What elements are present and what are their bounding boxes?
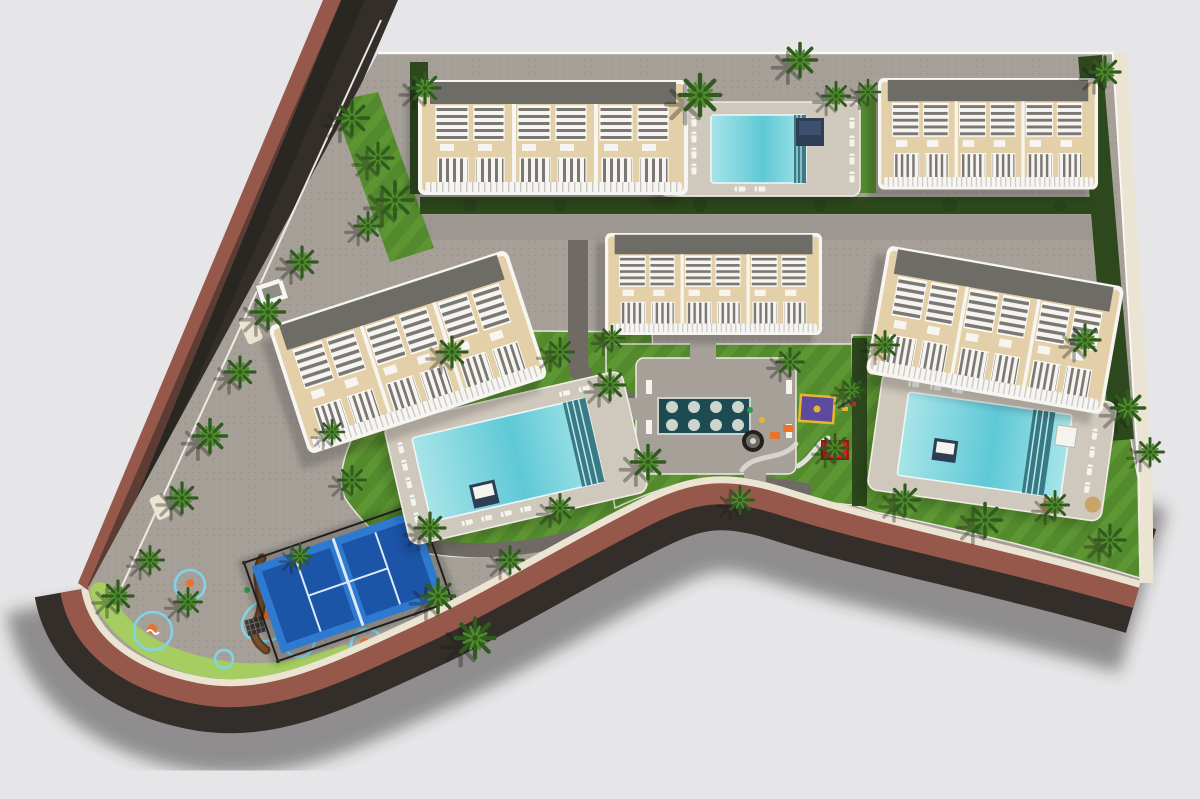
play-seat: [783, 425, 793, 432]
north-pool: [711, 115, 806, 183]
apartment-block-d: [595, 233, 822, 344]
apartment-block-a: [406, 80, 688, 205]
bench: [646, 420, 652, 434]
reflecting-pond: [658, 398, 750, 434]
daybed: [932, 438, 959, 463]
site-plan-render: [0, 0, 1200, 799]
daybed: [1055, 425, 1078, 448]
play-seat: [770, 432, 780, 439]
site-plan-canvas: [0, 0, 1200, 799]
bench: [646, 380, 652, 394]
apartment-block-b: [868, 78, 1098, 199]
daybed: [796, 118, 824, 146]
bench: [786, 380, 792, 394]
